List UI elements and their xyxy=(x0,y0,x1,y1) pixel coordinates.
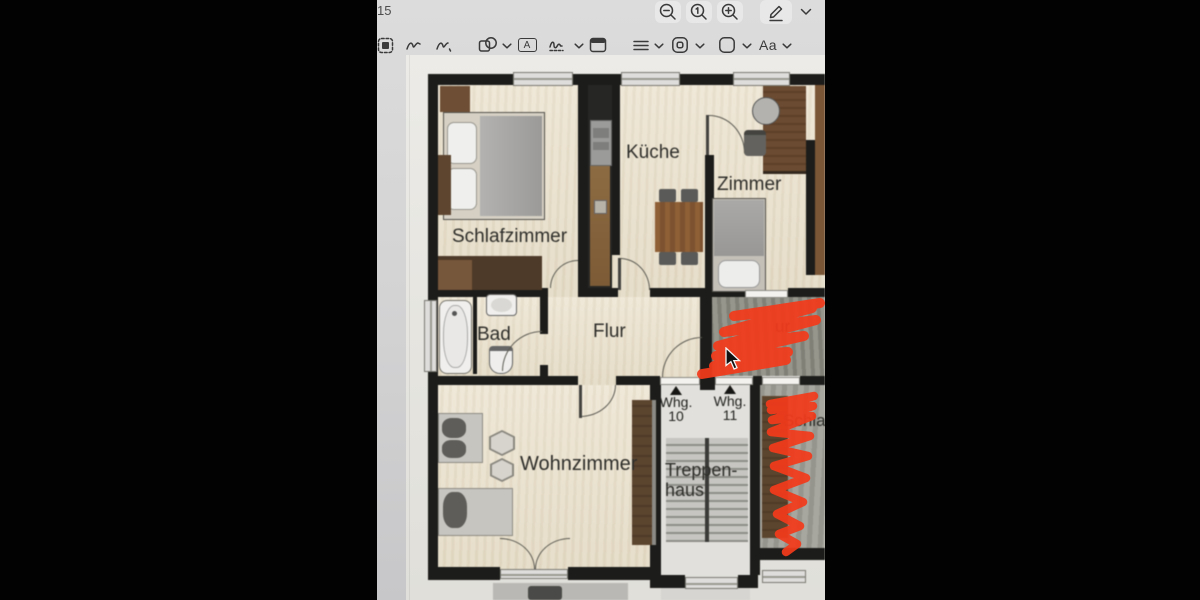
wall xyxy=(650,575,685,588)
markup-pencil-icon xyxy=(765,1,787,23)
floor-neighbor-corridor xyxy=(712,297,825,376)
chevron-down-icon xyxy=(742,43,752,50)
text-style-button[interactable]: Aa xyxy=(756,36,780,54)
bed-blanket xyxy=(714,200,764,256)
draw-tool-button[interactable] xyxy=(433,36,455,54)
line-style-button[interactable] xyxy=(630,36,652,54)
screen: Schlafzimmer Küche Zimmer Bad Flur Wohnz… xyxy=(0,0,1200,600)
stair-divider xyxy=(705,438,709,542)
wardrobe-section xyxy=(438,260,472,290)
note-tool-button[interactable] xyxy=(587,35,609,55)
selection-tool-icon xyxy=(377,37,394,54)
zoom-actual-size-icon xyxy=(689,2,709,22)
signature-icon xyxy=(548,38,571,53)
zoom-actual-size-button[interactable] xyxy=(686,1,712,23)
signature-tool-button[interactable] xyxy=(546,36,572,54)
wall xyxy=(578,83,588,288)
unit-11-marker: Whg. 11 xyxy=(709,385,751,422)
unit-10-number: 10 xyxy=(656,409,696,423)
dresser xyxy=(440,86,470,112)
room-label-schlafzimmer: Schlafzimmer xyxy=(452,226,567,248)
sofa-cushion xyxy=(442,418,466,438)
floorplan-image: Schlafzimmer Küche Zimmer Bad Flur Wohnz… xyxy=(377,0,825,600)
chair xyxy=(659,252,676,265)
room-label-bad: Bad xyxy=(477,324,511,346)
signature-tool-chevron[interactable] xyxy=(572,40,586,52)
pillow xyxy=(447,168,477,210)
pillow xyxy=(447,122,477,164)
window xyxy=(513,72,573,86)
dining-table xyxy=(655,202,703,252)
room-label-wohnzimmer: Wohnzimmer xyxy=(520,453,637,476)
chevron-down-icon xyxy=(782,43,792,50)
shapes-tool-chevron[interactable] xyxy=(500,40,514,52)
unit-11-label: Whg. xyxy=(709,394,751,408)
sofa-cushion xyxy=(443,492,467,528)
dresser xyxy=(438,155,451,215)
door-leaf xyxy=(762,377,800,385)
drain xyxy=(452,311,457,316)
kitchen-sink xyxy=(594,200,607,214)
window xyxy=(733,72,790,86)
room-label-neighbor-partial: Schla xyxy=(783,411,825,431)
zoom-in-icon xyxy=(720,2,740,22)
fill-color-button[interactable] xyxy=(716,35,738,55)
balcony-door-sill xyxy=(500,569,568,579)
draw-pen-icon xyxy=(435,38,453,53)
apartment-door-leaf xyxy=(660,377,700,385)
chair xyxy=(681,252,698,265)
fill-color-chevron[interactable] xyxy=(740,40,754,52)
wall xyxy=(616,376,660,385)
fill-color-icon xyxy=(718,36,736,54)
wall xyxy=(750,385,760,575)
chevron-down-icon xyxy=(502,43,512,50)
border-color-chevron[interactable] xyxy=(693,40,707,52)
wall xyxy=(578,288,618,297)
room-label-neighbor-flur-partial: ur xyxy=(775,317,790,337)
room-label-zimmer: Zimmer xyxy=(717,174,781,196)
balcony-object xyxy=(528,586,562,600)
wall xyxy=(753,376,762,385)
wall xyxy=(612,83,620,255)
toolbar-more-button[interactable] xyxy=(797,5,815,19)
text-tool-icon: A xyxy=(518,38,537,52)
kitchen-counter xyxy=(590,166,610,286)
zoom-in-button[interactable] xyxy=(717,1,743,23)
desk-chair xyxy=(744,130,766,156)
apartment-door-leaf xyxy=(715,377,753,385)
border-color-icon xyxy=(671,36,689,54)
desk xyxy=(815,85,825,275)
sketch-pen-icon xyxy=(405,38,423,53)
markup-pencil-button[interactable] xyxy=(760,0,792,24)
wall xyxy=(568,567,660,580)
chevron-down-icon xyxy=(574,43,584,50)
door-leaf xyxy=(745,290,788,298)
unit-11-number: 11 xyxy=(709,408,751,422)
zoom-out-button[interactable] xyxy=(655,1,681,23)
sink-basin xyxy=(491,298,512,312)
wall xyxy=(800,376,825,385)
chevron-down-icon xyxy=(654,43,664,50)
markup-app-window: Schlafzimmer Küche Zimmer Bad Flur Wohnz… xyxy=(377,0,825,600)
unit-10-marker: Whg. 10 xyxy=(656,386,696,423)
wall xyxy=(738,575,758,588)
shapes-tool-button[interactable] xyxy=(476,34,500,54)
wall xyxy=(540,297,548,334)
shapes-icon xyxy=(478,36,498,53)
door-leaf xyxy=(579,385,582,418)
chair xyxy=(681,189,698,202)
table xyxy=(752,97,780,125)
room-label-treppenhaus-2: haus xyxy=(665,480,704,501)
text-tool-glyph: A xyxy=(524,40,531,51)
bed-blanket xyxy=(480,116,542,216)
fridge-detail xyxy=(593,142,609,150)
note-icon xyxy=(589,37,607,53)
wall xyxy=(428,376,578,385)
fridge-detail xyxy=(593,128,609,138)
window xyxy=(685,577,738,589)
room-label-treppenhaus-1: Treppen- xyxy=(665,460,737,481)
wall xyxy=(428,567,500,580)
window xyxy=(424,300,437,372)
floor-below-stairs xyxy=(661,588,750,600)
wall xyxy=(755,548,825,560)
pillow xyxy=(718,260,760,288)
sketch-tool-button[interactable] xyxy=(403,36,425,54)
wall xyxy=(788,288,825,297)
zoom-out-icon xyxy=(658,2,678,22)
stair-flight xyxy=(709,438,748,542)
room-label-flur: Flur xyxy=(593,321,626,343)
door-leaf xyxy=(706,115,709,155)
room-label-kueche: Küche xyxy=(626,142,680,164)
page-number: 15 xyxy=(377,3,391,18)
window xyxy=(762,570,806,583)
chair xyxy=(659,189,676,202)
text-tool-button[interactable]: A xyxy=(516,36,538,54)
text-style-chevron[interactable] xyxy=(780,40,794,52)
unit-10-label: Whg. xyxy=(656,395,696,409)
chevron-down-icon xyxy=(695,43,705,50)
line-style-chevron[interactable] xyxy=(652,40,666,52)
window xyxy=(621,72,680,86)
selection-tool-button[interactable] xyxy=(377,35,395,55)
chevron-down-icon xyxy=(800,8,812,16)
sofa-cushion xyxy=(442,440,466,458)
border-color-button[interactable] xyxy=(669,35,691,55)
door-leaf xyxy=(618,258,621,290)
wall xyxy=(806,140,815,275)
text-style-label: Aa xyxy=(759,37,777,53)
line-thickness-icon xyxy=(632,38,650,53)
